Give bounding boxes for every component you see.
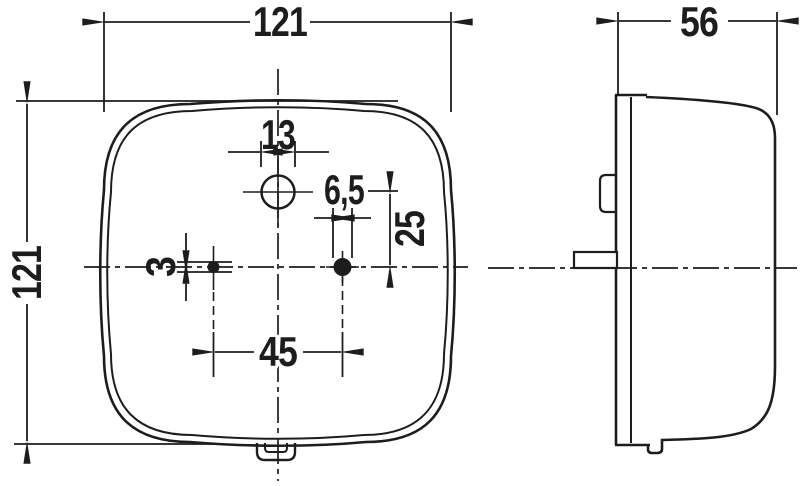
dimension-mount-hole: [314, 208, 371, 258]
dim-label-vertical-offset: 25: [386, 210, 433, 247]
dim-label-front-width: 121: [253, 0, 308, 45]
dim-label-hole-spacing: 45: [259, 328, 298, 375]
dim-label-top-hole: 13: [261, 111, 295, 158]
mounting-stud: [574, 252, 617, 268]
dim-label-mount-hole: 6,5: [324, 166, 364, 213]
dim-label-front-height: 121: [3, 245, 50, 300]
side-view: [488, 12, 797, 453]
engineering-drawing: 121 121 13 6,5 25 3 45 56: [0, 0, 800, 486]
bottom-tab-inner: [265, 443, 287, 452]
dim-label-depth: 56: [680, 0, 718, 45]
lens-profile: [646, 97, 775, 453]
engineering-drawing-page: 121 121 13 6,5 25 3 45 56: [0, 0, 800, 486]
rear-latch-tab: [600, 175, 616, 212]
dim-label-pin-hole: 3: [137, 257, 184, 277]
